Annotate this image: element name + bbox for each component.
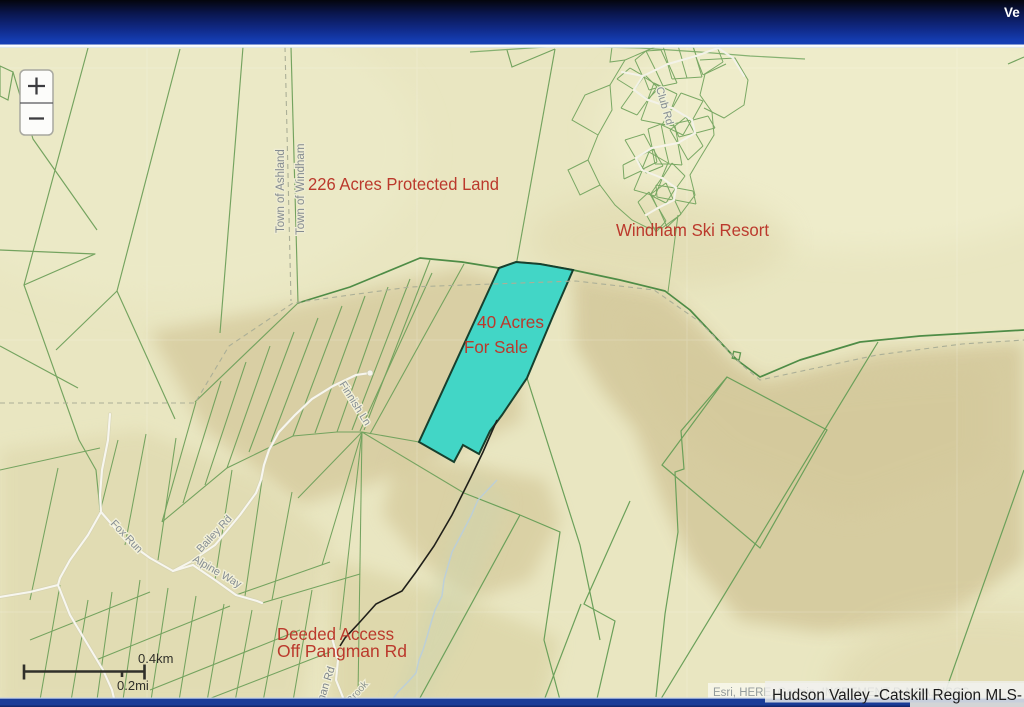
- svg-text:226 Acres Protected Land: 226 Acres Protected Land: [308, 174, 499, 194]
- svg-text:Town of Windham: Town of Windham: [295, 144, 307, 235]
- svg-text:Ve: Ve: [1004, 5, 1020, 20]
- svg-text:Hudson Valley -Catskill Region: Hudson Valley -Catskill Region MLS-: [772, 687, 1022, 704]
- svg-text:Windham Ski Resort: Windham Ski Resort: [616, 220, 769, 240]
- svg-text:0.2mi: 0.2mi: [117, 678, 149, 693]
- svg-text:Off Pangman Rd: Off Pangman Rd: [277, 641, 407, 661]
- svg-text:0.4km: 0.4km: [138, 651, 173, 666]
- svg-text:Town of Ashland: Town of Ashland: [275, 149, 287, 233]
- svg-text:For Sale: For Sale: [464, 337, 528, 357]
- svg-text:40 Acres: 40 Acres: [477, 312, 544, 332]
